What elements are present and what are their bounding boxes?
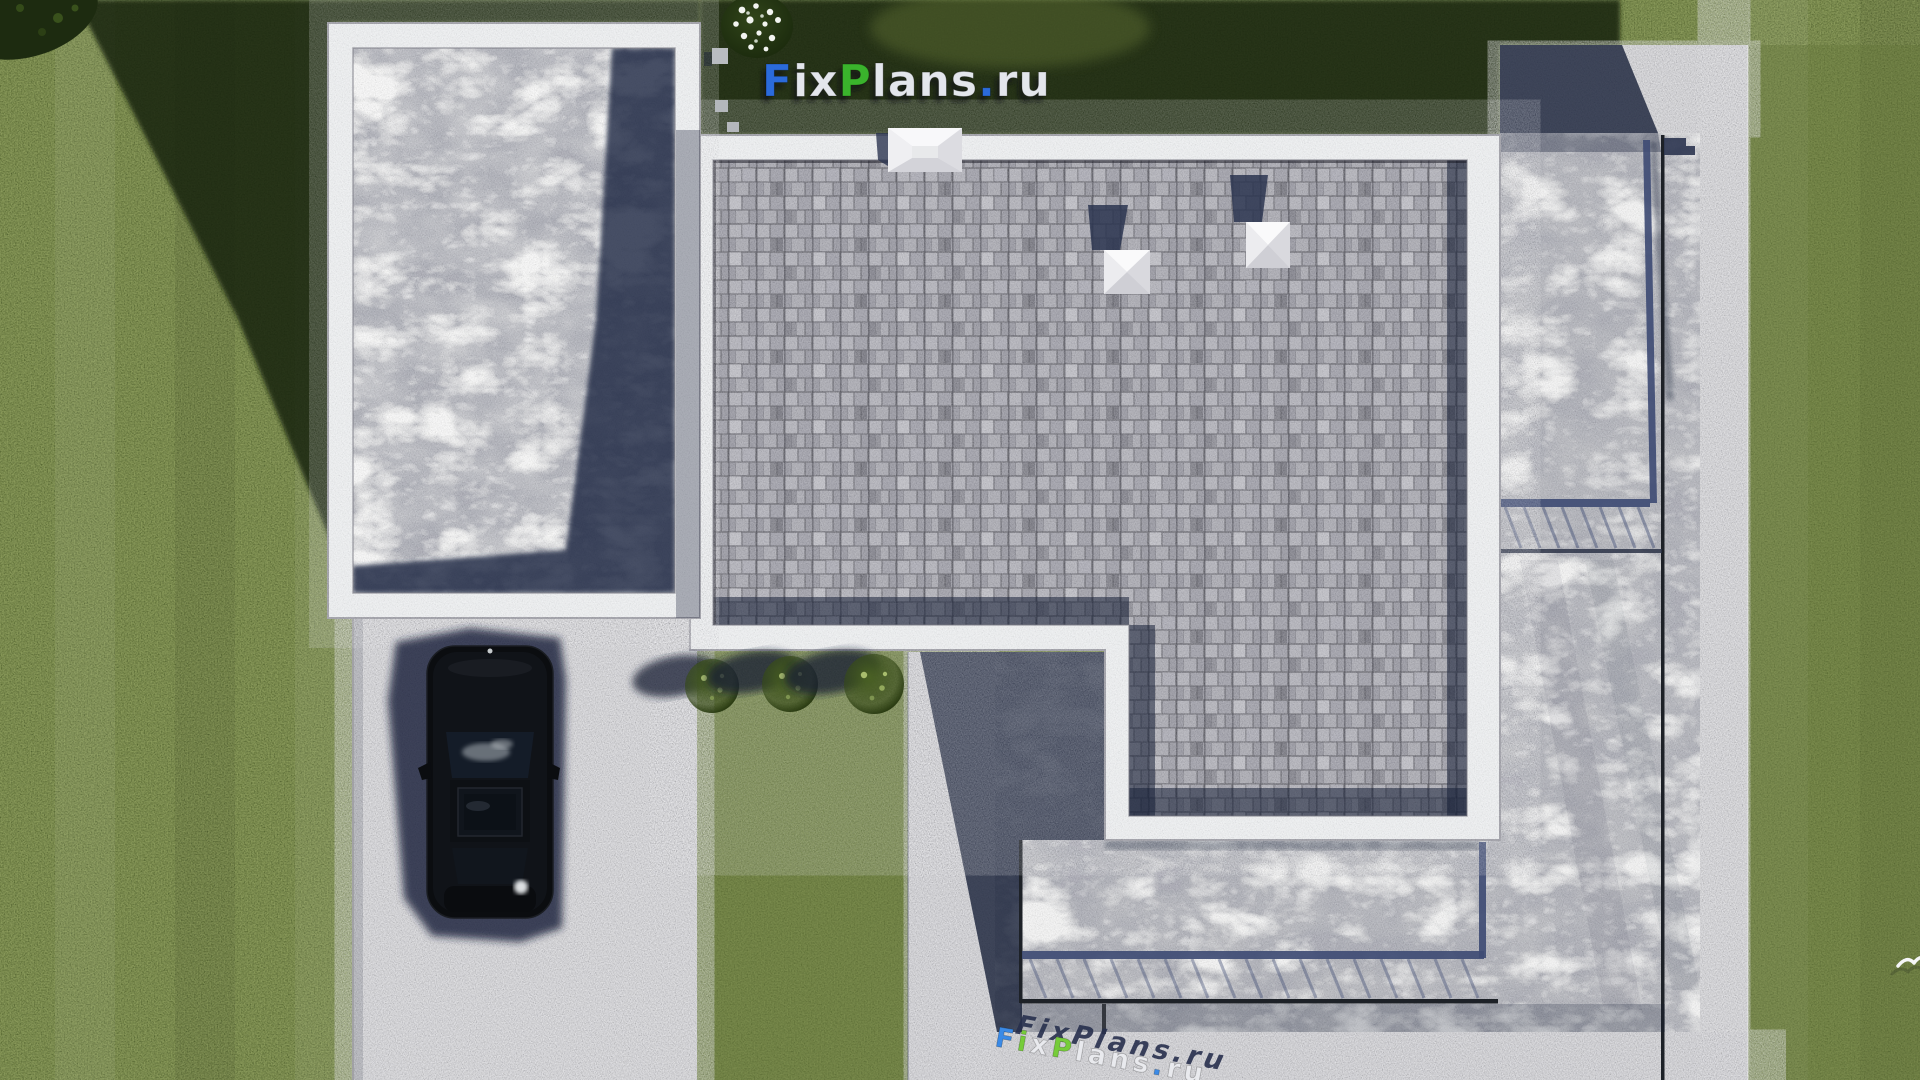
site-logo-text: FixPlans.ru: [762, 56, 1051, 107]
skylight-1: [1104, 250, 1150, 294]
parapet-vent: [876, 128, 962, 172]
car: [388, 628, 566, 942]
garage-roof-deck: [353, 48, 675, 593]
garage-roof: [328, 23, 739, 618]
skylight-2-shadow: [1230, 175, 1268, 222]
scene-svg: FixPlans.ru FixPlans.ru FixPlans.ru FixP…: [0, 0, 1920, 1080]
site-logo: FixPlans.ru FixPlans.ru: [758, 56, 1051, 113]
car-rear-glass: [452, 848, 528, 884]
car-highlight: [514, 880, 528, 894]
skylight-2: [1246, 222, 1290, 268]
car-hood-shine: [448, 659, 532, 677]
render-viewport: FixPlans.ru FixPlans.ru FixPlans.ru FixP…: [0, 0, 1920, 1080]
